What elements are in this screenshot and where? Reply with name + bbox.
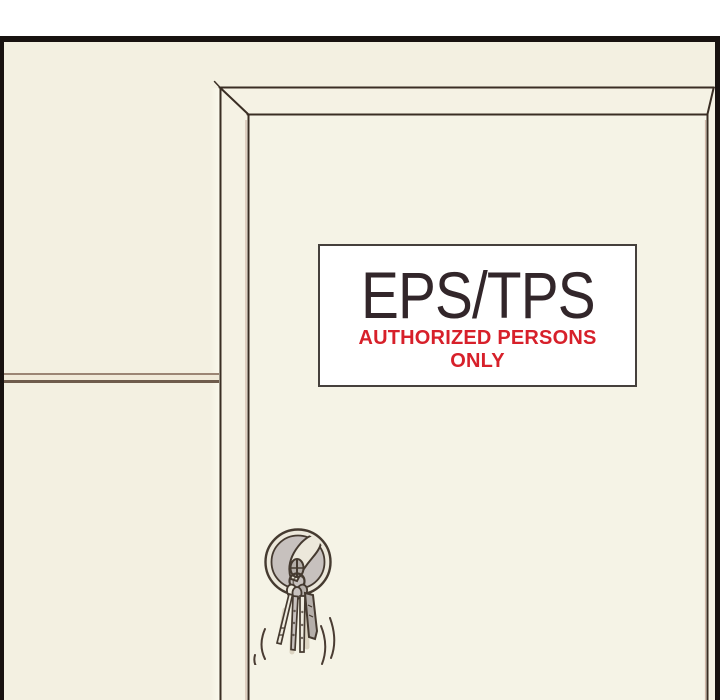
webtoon-panel: EPS/TPS AUTHORIZED PERSONS ONLY — [0, 0, 720, 700]
sign-title: EPS/TPS — [361, 264, 595, 326]
key-bunch-icon — [277, 583, 317, 652]
door-sign: EPS/TPS AUTHORIZED PERSONS ONLY — [318, 244, 637, 387]
sign-warning-line2: ONLY — [450, 350, 505, 373]
keyhole-and-keys — [245, 515, 355, 665]
